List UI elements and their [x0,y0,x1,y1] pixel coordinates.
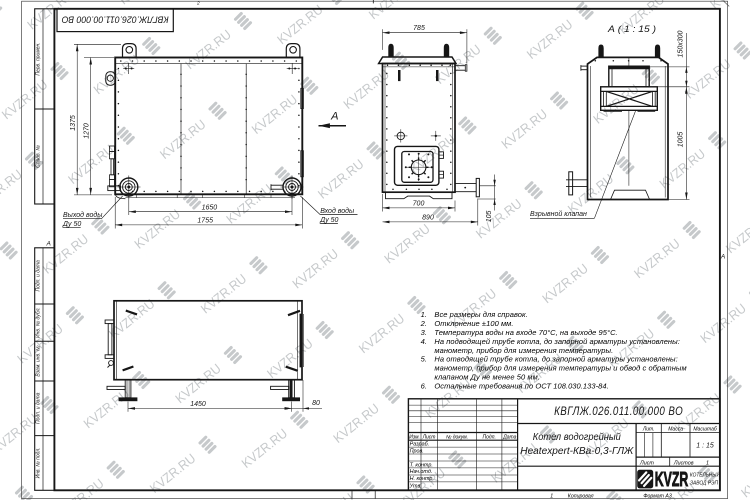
svg-text:2.: 2. [420,319,427,328]
svg-text:манометр, прибор для измерения: манометр, прибор для измерения температу… [434,346,613,355]
svg-text:Остальные требования по ОСТ 10: Остальные требования по ОСТ 108.030.133-… [434,382,608,391]
svg-text:1 : 15: 1 : 15 [696,443,714,450]
svg-text:Лист: Лист [422,435,436,441]
svg-text:105: 105 [486,210,493,222]
svg-text:КВГЛЖ.026.011.00.000 ВО: КВГЛЖ.026.011.00.000 ВО [61,14,168,25]
svg-text:KVZR: KVZR [655,469,689,491]
svg-text:150х300: 150х300 [678,30,685,57]
svg-text:Все размеры для справок.: Все размеры для справок. [434,310,527,319]
svg-text:А: А [720,254,725,261]
svg-text:4.: 4. [421,337,427,346]
svg-text:Н. контр.: Н. контр. [410,476,434,482]
svg-text:Heatexpert-КВа-0,3-ГЛЖ: Heatexpert-КВа-0,3-ГЛЖ [520,446,634,457]
svg-text:Вход воды: Вход воды [320,207,355,215]
svg-text:А ( 1 : 15 ): А ( 1 : 15 ) [607,24,656,35]
svg-text:Изм.: Изм. [409,435,420,441]
svg-text:Лист: Лист [639,460,654,466]
svg-text:Формат А3: Формат А3 [643,493,671,499]
svg-text:Инв. № дубл.: Инв. № дубл. [36,307,42,338]
svg-text:1450: 1450 [190,401,206,408]
svg-text:Разраб.: Разраб. [410,442,430,448]
svg-text:Подп.: Подп. [483,435,496,441]
svg-text:Инв. № подл.: Инв. № подл. [36,447,42,478]
svg-text:манометр, прибор для измерения: манометр, прибор для измерения температу… [434,364,686,373]
svg-text:Подп. и дата: Подп. и дата [36,392,42,424]
svg-text:Справ. №: Справ. № [36,145,42,168]
svg-text:1: 1 [706,460,709,466]
svg-text:Дата: Дата [502,435,516,441]
svg-text:А: А [330,110,338,122]
svg-text:На подводящей трубе котла, до: На подводящей трубе котла, до запорной а… [434,337,679,346]
svg-text:Масса: Масса [668,427,683,433]
svg-text:Копировал: Копировал [568,493,594,499]
svg-text:Т. контр.: Т. контр. [410,462,433,468]
svg-text:Выход воды: Выход воды [63,211,103,219]
svg-text:1375: 1375 [70,115,77,131]
svg-text:80: 80 [312,400,320,407]
svg-text:клапаном Ду не менее 50 мм.: клапаном Ду не менее 50 мм. [434,373,540,382]
svg-text:Нач.отд.: Нач.отд. [410,469,433,475]
svg-text:Листов: Листов [673,460,694,466]
svg-text:Взрывной клапан: Взрывной клапан [530,210,587,218]
svg-text:Подп. и дата: Подп. и дата [36,260,42,292]
svg-text:1270: 1270 [84,123,91,139]
svg-text:КВГЛЖ.026.011.00.000 ВО: КВГЛЖ.026.011.00.000 ВО [554,406,683,418]
svg-text:Ду 50: Ду 50 [319,217,338,224]
svg-text:5.: 5. [421,355,427,364]
svg-text:1.: 1. [421,310,427,319]
svg-text:6.: 6. [421,382,427,391]
svg-text:3.: 3. [421,328,427,337]
svg-text:№ докум.: № докум. [446,435,468,441]
svg-text:На отводящей трубе котла, до з: На отводящей трубе котла, до запорной ар… [434,355,677,364]
svg-text:ЗАВОД РЭП: ЗАВОД РЭП [690,481,718,487]
svg-text:Температура воды на входе 70°С: Температура воды на входе 70°С, на выход… [434,328,617,337]
svg-text:890: 890 [422,215,434,222]
svg-text:1755: 1755 [197,218,213,225]
svg-text:А: А [46,240,51,247]
svg-text:Пров.: Пров. [410,448,424,454]
svg-text:700: 700 [413,201,425,208]
svg-text:Отклонение ±100 мм.: Отклонение ±100 мм. [434,319,513,328]
svg-text:Котел водогрейный: Котел водогрейный [533,432,621,443]
svg-text:Перв. примен.: Перв. примен. [36,42,42,75]
svg-text:КОТЕЛЬНЫЙ: КОТЕЛЬНЫЙ [690,470,720,478]
svg-text:1005: 1005 [678,132,685,148]
svg-text:Лит.: Лит. [642,427,655,433]
svg-text:2: 2 [196,1,200,7]
svg-text:Взам. инв. №: Взам. инв. № [36,345,42,377]
svg-text:785: 785 [413,25,425,32]
svg-text:Масштаб: Масштаб [693,427,717,433]
svg-text:1650: 1650 [202,204,218,211]
svg-text:Утв.: Утв. [409,483,422,489]
svg-text:Ду 50: Ду 50 [62,221,81,228]
svg-text:1: 1 [550,493,553,499]
